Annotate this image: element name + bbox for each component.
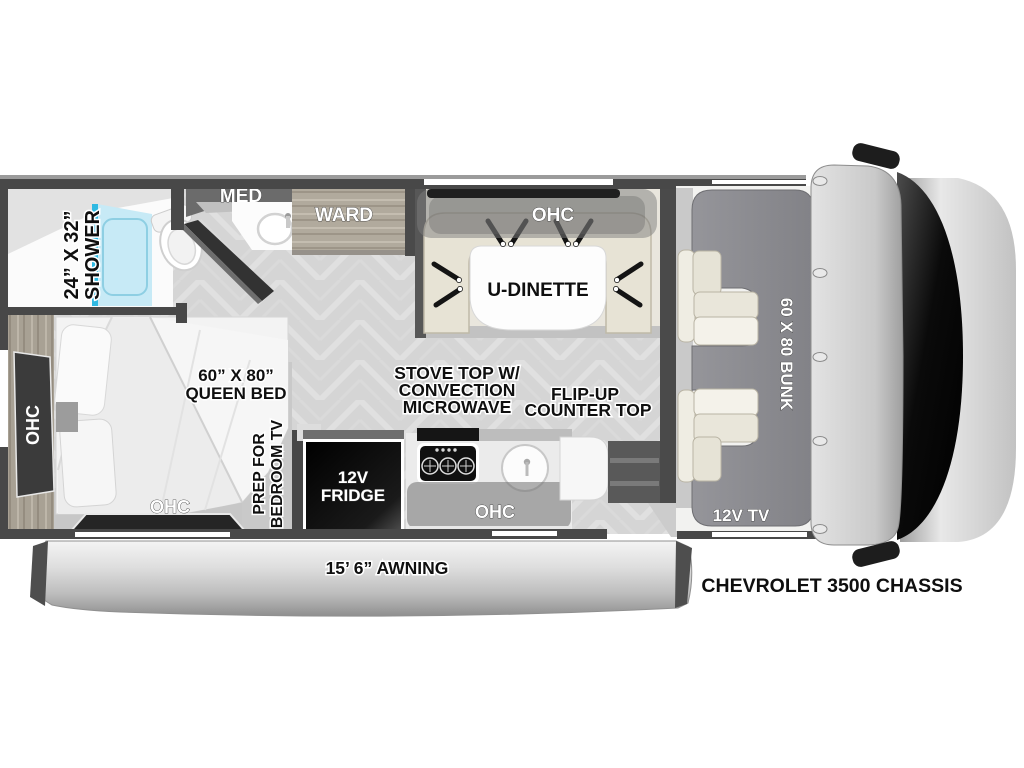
svg-text:QUEEN BED: QUEEN BED bbox=[185, 384, 286, 403]
svg-text:BEDROOM TV: BEDROOM TV bbox=[269, 419, 286, 528]
svg-text:FRIDGE: FRIDGE bbox=[321, 486, 385, 505]
svg-text:24” X 32”: 24” X 32” bbox=[61, 211, 83, 300]
svg-text:PREP FOR: PREP FOR bbox=[251, 433, 268, 515]
svg-text:OHC: OHC bbox=[150, 497, 190, 517]
svg-text:12V TV: 12V TV bbox=[713, 506, 770, 525]
svg-text:12V: 12V bbox=[338, 468, 369, 487]
svg-text:OHC: OHC bbox=[23, 405, 43, 445]
svg-text:60 X 80 BUNK: 60 X 80 BUNK bbox=[777, 298, 796, 411]
svg-text:15’ 6” AWNING: 15’ 6” AWNING bbox=[326, 558, 449, 578]
svg-text:OHC: OHC bbox=[475, 502, 515, 522]
svg-text:CHEVROLET 3500 CHASSIS: CHEVROLET 3500 CHASSIS bbox=[701, 575, 962, 597]
svg-text:60” X 80”: 60” X 80” bbox=[198, 366, 274, 385]
svg-text:SHOWER: SHOWER bbox=[82, 209, 104, 300]
svg-text:MICROWAVE: MICROWAVE bbox=[403, 397, 512, 417]
svg-text:COUNTER TOP: COUNTER TOP bbox=[524, 400, 651, 420]
svg-text:WARD: WARD bbox=[315, 205, 373, 226]
svg-text:OHC: OHC bbox=[532, 205, 575, 226]
svg-text:U-DINETTE: U-DINETTE bbox=[487, 280, 588, 301]
